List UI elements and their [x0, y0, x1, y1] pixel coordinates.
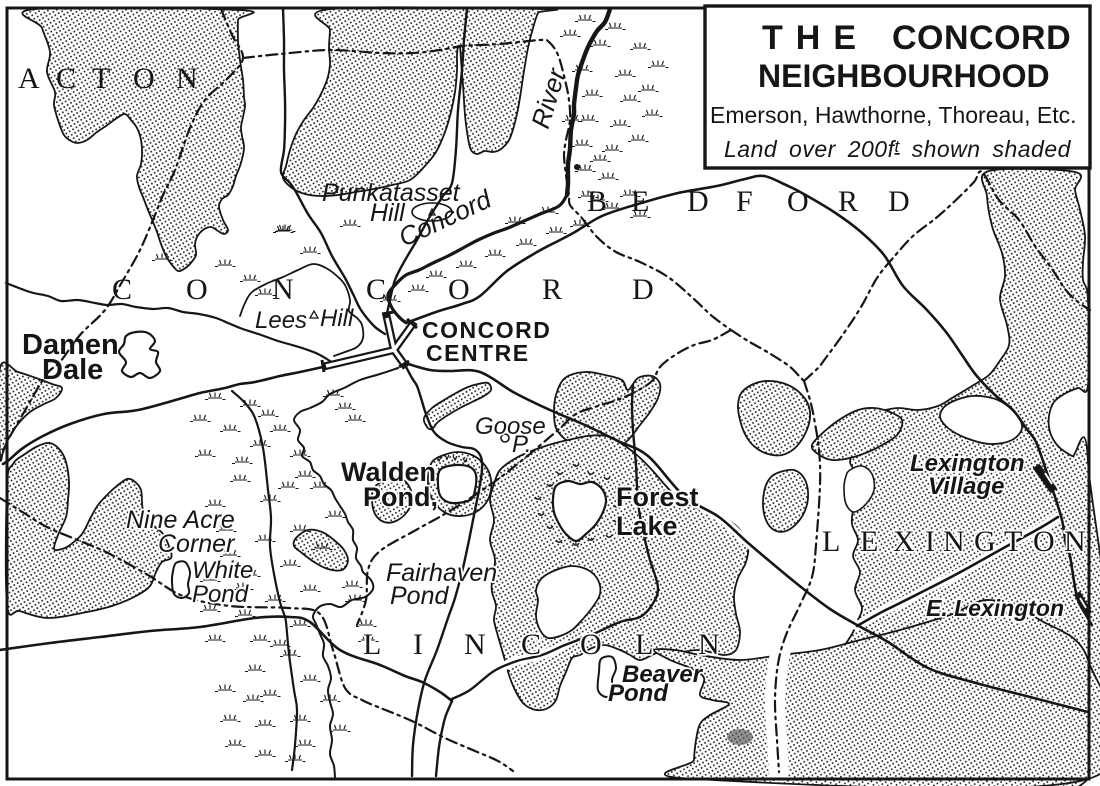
svg-text:Dale: Dale — [42, 354, 103, 386]
svg-text:Pond: Pond — [390, 582, 449, 610]
svg-text:Lees: Lees — [255, 307, 307, 334]
svg-text:THE: THE — [762, 19, 869, 57]
svg-text:Pond: Pond — [192, 581, 249, 608]
svg-text:Pond,: Pond, — [363, 482, 438, 512]
svg-text:LEXINGTON: LEXINGTON — [822, 525, 1086, 558]
svg-text:CONCORD: CONCORD — [892, 19, 1071, 57]
svg-text:E. Lexington: E. Lexington — [926, 595, 1064, 621]
svg-text:Goose: Goose — [475, 413, 546, 440]
svg-text:White: White — [192, 557, 253, 584]
svg-text:Lake: Lake — [616, 511, 678, 541]
svg-text:Emerson, Hawthorne, Thoreau, E: Emerson, Hawthorne, Thoreau, Etc. — [710, 102, 1076, 128]
svg-text:P.: P. — [512, 431, 532, 458]
svg-text:Hill: Hill — [320, 305, 354, 332]
svg-text:Village: Village — [928, 473, 1004, 500]
svg-text:CENTRE: CENTRE — [426, 340, 530, 366]
svg-text:Forest: Forest — [616, 482, 699, 512]
svg-text:NEIGHBOURHOOD: NEIGHBOURHOOD — [758, 58, 1050, 94]
svg-text:Pond: Pond — [608, 680, 669, 707]
svg-text:Corner: Corner — [158, 530, 236, 558]
